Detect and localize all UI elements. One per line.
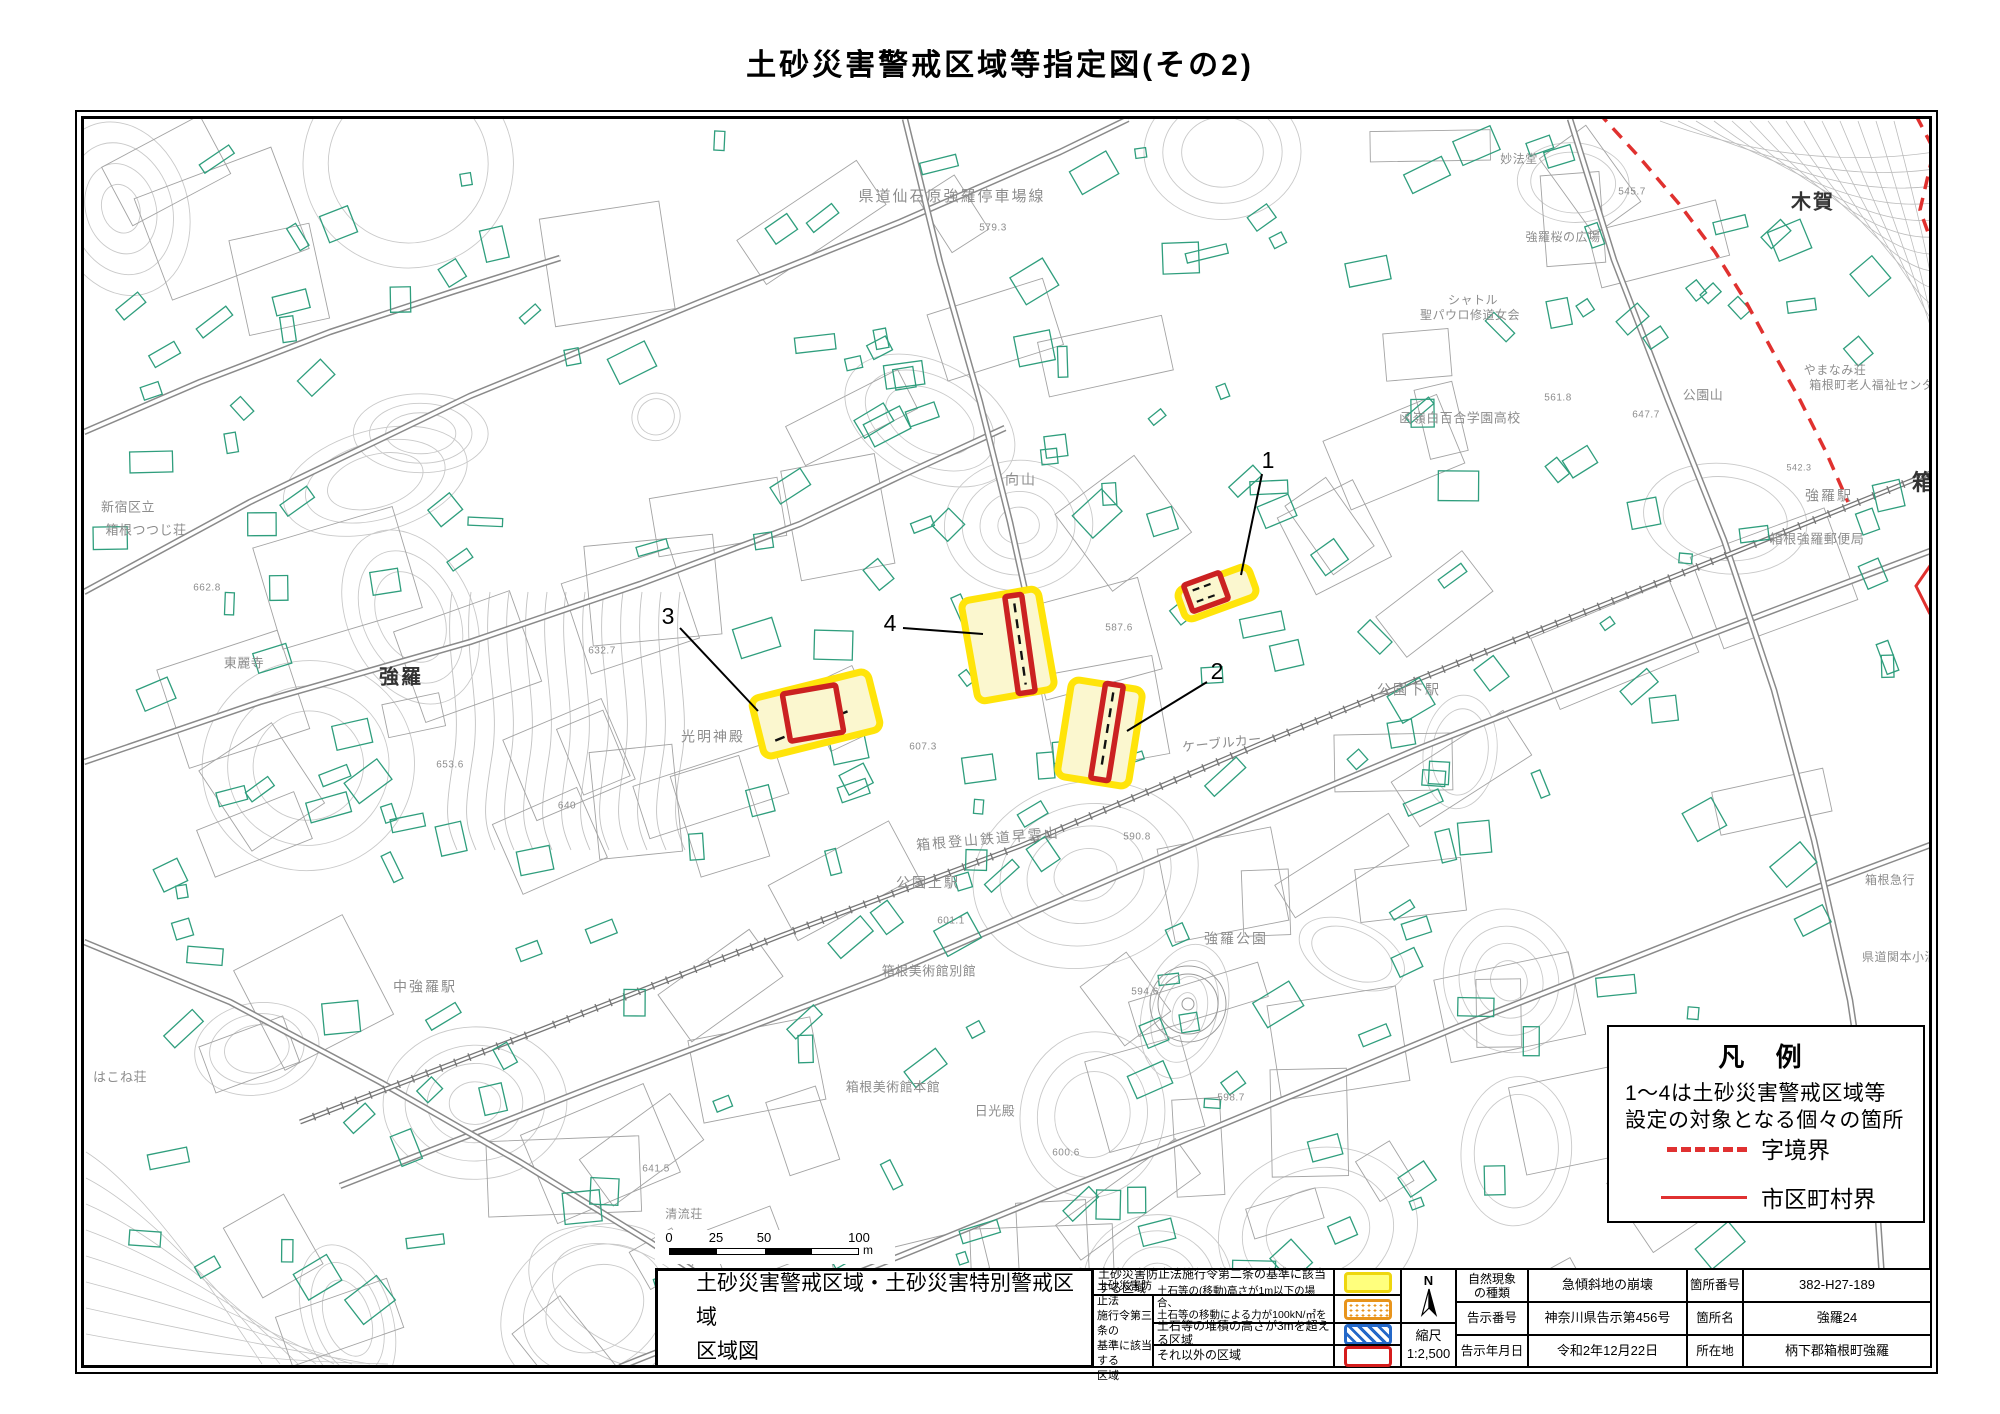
building-outline — [319, 765, 351, 787]
building-outline — [1600, 616, 1615, 630]
parcel-outline — [197, 792, 313, 877]
building-outline — [153, 858, 187, 892]
building-outline — [468, 517, 503, 527]
contour-line — [1168, 990, 1201, 1033]
parcel-outline — [1085, 1035, 1205, 1152]
building-outline — [306, 792, 352, 823]
legend-item-label: 字境界 — [1761, 1131, 1830, 1165]
building-outline — [880, 1160, 902, 1190]
building-outline — [806, 204, 838, 233]
building-outline — [516, 845, 554, 875]
building-outline — [985, 859, 1020, 892]
designation-map-page: 土砂災害警戒区域等指定図(その2) 1234県道仙石原強羅停車場線579.3木賀… — [0, 0, 2000, 1414]
elevation-label: 662.8 — [193, 583, 221, 594]
building-outline — [1014, 330, 1056, 367]
parcel-outline — [737, 160, 886, 284]
building-outline — [1409, 1197, 1424, 1210]
building-outline — [1545, 457, 1569, 482]
contour-line — [985, 785, 1187, 964]
building-outline — [1328, 1217, 1358, 1244]
scale-tick-label: 0 — [665, 1230, 672, 1245]
building-outline — [883, 361, 924, 389]
map-label: 箱根美術館別館 — [882, 963, 977, 978]
parcel-outline — [1383, 328, 1452, 381]
building-outline — [1844, 336, 1873, 366]
parcel-outline — [1356, 1141, 1414, 1202]
building-outline — [794, 334, 836, 354]
map-label: 箱根急行 — [1865, 872, 1915, 887]
contour-line — [1181, 119, 1264, 188]
north-label: N — [1424, 1274, 1433, 1289]
building-outline — [1428, 761, 1449, 785]
building-outline — [332, 718, 373, 750]
map-label: 日光殿 — [975, 1103, 1016, 1118]
building-outline — [438, 259, 466, 287]
building-outline — [1345, 255, 1391, 287]
building-outline — [1147, 506, 1179, 536]
contour-line — [86, 1178, 280, 1364]
building-outline — [845, 356, 863, 371]
elevation-label: 647.7 — [1632, 410, 1660, 421]
building-outline — [426, 1003, 461, 1031]
elevation-label: 607.3 — [909, 742, 937, 753]
building-outline — [282, 1240, 293, 1262]
contour-line — [353, 393, 489, 473]
building-outline — [1649, 695, 1678, 723]
building-outline — [1876, 640, 1899, 674]
contour-line — [86, 1282, 352, 1364]
map-label: 清流荘 — [665, 1207, 703, 1221]
building-outline — [1695, 1222, 1745, 1270]
contour-line — [623, 384, 689, 449]
map-label: 向山 — [1005, 472, 1037, 488]
contour-line — [1455, 1072, 1577, 1230]
contour-line — [448, 592, 457, 850]
scale-cell: 縮尺 1:2,500 — [1400, 1322, 1457, 1368]
building-outline — [224, 432, 239, 453]
detail-label: 箇所番号 — [1686, 1268, 1744, 1303]
detail-label: 所在地 — [1686, 1334, 1744, 1368]
detail-label: 告示番号 — [1455, 1301, 1529, 1336]
building-outline — [1135, 148, 1147, 159]
building-outline — [381, 804, 397, 824]
building-outline — [516, 940, 542, 961]
map-label: 光明神殿 — [681, 729, 745, 745]
parcel-outline — [539, 201, 675, 327]
building-outline — [1401, 916, 1431, 940]
building-outline — [870, 900, 903, 934]
building-outline — [962, 754, 996, 784]
building-outline — [607, 341, 656, 384]
building-outline — [746, 785, 775, 817]
building-outline — [195, 1256, 221, 1278]
parcel-outline — [492, 787, 607, 894]
contour-line — [96, 180, 146, 238]
contour-line — [449, 1081, 502, 1125]
map-sheet-title-cell: 土砂災害警戒区域・土砂災害特別警戒区域区域図 — [655, 1268, 1094, 1368]
building-outline — [479, 226, 509, 262]
building-outline — [1531, 770, 1550, 798]
map-label: 県道仙石原強羅停車場線 — [858, 188, 1045, 205]
parcel-outline — [786, 370, 918, 466]
contour-line — [657, 592, 666, 850]
building-outline — [920, 154, 959, 174]
zone-marker-number-2: 2 — [1211, 658, 1224, 684]
building-outline — [956, 1252, 968, 1265]
map-label: 箱根強羅郵便局 — [1770, 531, 1865, 546]
map-label: 公園上駅 — [896, 875, 960, 891]
contour-line — [1162, 119, 1283, 204]
detail-value: 強羅24 — [1742, 1301, 1932, 1336]
building-outline — [1010, 258, 1059, 305]
building-outline — [1247, 204, 1276, 231]
scale-bar-strip — [669, 1248, 859, 1255]
scale-value: 1:2,500 — [1407, 1345, 1450, 1363]
building-outline — [713, 1095, 733, 1112]
detail-value: 急傾斜地の崩壊 — [1527, 1268, 1688, 1303]
map-label: 箱根美術館本館 — [846, 1079, 941, 1094]
map-label: 公園下駅 — [1377, 682, 1441, 698]
detail-label: 箇所名 — [1686, 1301, 1744, 1336]
parcel-outline — [1270, 1068, 1349, 1177]
building-outline — [1063, 1187, 1099, 1222]
building-outline — [1216, 383, 1230, 399]
article3-row-swatch-cell — [1333, 1344, 1402, 1368]
building-outline — [1185, 244, 1228, 263]
legend-title: 凡 例 — [1609, 1037, 1923, 1074]
parcel-outline — [589, 744, 682, 859]
contour-line — [1154, 971, 1215, 1051]
article3-row-swatch-cell — [1333, 1294, 1402, 1324]
special-area-red — [782, 685, 844, 742]
contour-line — [1470, 1091, 1563, 1211]
elevation-label: 545.7 — [1618, 187, 1646, 198]
building-outline — [1127, 1061, 1172, 1099]
elevation-label: 594.6 — [1131, 987, 1159, 998]
map-label: 箱根 — [1912, 470, 1929, 495]
building-outline — [1391, 947, 1423, 977]
contour-line — [233, 691, 383, 840]
map-label: 強羅桜の広場 — [1525, 230, 1600, 244]
building-outline — [1044, 434, 1068, 458]
building-outline — [1269, 232, 1286, 249]
park-fountain — [1158, 974, 1218, 1034]
building-outline — [1438, 563, 1467, 588]
building-outline — [863, 559, 894, 591]
building-outline — [319, 206, 357, 243]
map-label: 強羅公園 — [1204, 931, 1268, 947]
building-outline — [798, 1035, 813, 1063]
building-outline — [973, 799, 983, 814]
building-outline — [1787, 298, 1817, 313]
building-outline — [689, 833, 705, 860]
solid-boundary-sample-line — [1661, 1196, 1747, 1199]
building-outline — [585, 919, 617, 943]
building-outline — [1562, 446, 1597, 478]
contour-line — [581, 592, 590, 850]
building-outline — [1057, 346, 1067, 377]
elevation-label: 542.3 — [1786, 462, 1811, 472]
building-outline — [1850, 256, 1891, 297]
parcel-outline — [1690, 508, 1858, 649]
scale-bar: 0 25 50 100 m — [655, 1230, 895, 1264]
building-outline — [280, 486, 315, 516]
orange-dots-swatch — [1344, 1299, 1392, 1320]
map-label: はこね荘 — [93, 1069, 147, 1084]
building-outline — [406, 1234, 445, 1249]
compass-cell: N — [1400, 1268, 1457, 1324]
page-title: 土砂災害警戒区域等指定図(その2) — [0, 40, 2000, 84]
building-outline — [199, 145, 234, 173]
map-label: やまなみ荘 — [1804, 363, 1867, 377]
north-arrow-icon — [1417, 1288, 1441, 1318]
detail-value: 柄下郡箱根町強羅 — [1742, 1334, 1932, 1368]
zone-marker-leader-1 — [1241, 474, 1262, 575]
parcel-outline — [557, 710, 631, 795]
contour-line — [953, 757, 1219, 992]
red-outline-swatch — [1344, 1346, 1392, 1367]
contour-line — [187, 993, 326, 1105]
elevation-label: 641.5 — [642, 1164, 670, 1175]
building-outline — [1250, 480, 1288, 495]
building-outline — [519, 304, 540, 324]
contour-line — [321, 443, 430, 520]
building-outline — [1739, 526, 1769, 543]
map-label: 函嶺白百合学園高校 — [1399, 410, 1521, 425]
building-outline — [814, 630, 853, 660]
detail-value: 令和2年12月22日 — [1527, 1334, 1688, 1368]
elevation-label: 600.6 — [1052, 1148, 1080, 1159]
parcel-outline — [102, 119, 231, 226]
building-outline — [1269, 640, 1303, 672]
building-outline — [905, 402, 939, 427]
building-outline — [176, 885, 189, 899]
parcel-outline — [134, 147, 309, 300]
building-outline — [1162, 242, 1199, 274]
building-outline — [248, 513, 277, 536]
building-outline — [136, 677, 176, 711]
building-outline — [1682, 798, 1726, 842]
contour-line — [369, 403, 472, 464]
building-outline — [1221, 1071, 1246, 1095]
parcel-outline — [1241, 869, 1290, 936]
building-outline — [1359, 1024, 1391, 1047]
contour-line — [84, 130, 189, 288]
map-label: 木賀 — [1790, 189, 1835, 213]
contour-line — [638, 592, 647, 850]
detail-value: 神奈川県告示第456号 — [1527, 1301, 1688, 1336]
parcel-outline — [1016, 1200, 1090, 1275]
contour-line — [1876, 121, 1929, 356]
building-outline — [1627, 497, 1661, 529]
building-outline — [270, 576, 288, 601]
building-outline — [130, 451, 173, 473]
building-outline — [1148, 409, 1166, 426]
scale-unit-label: m — [863, 1243, 873, 1257]
detail-label: 自然現象の種類 — [1455, 1268, 1529, 1303]
building-outline — [1687, 1007, 1699, 1020]
building-outline — [828, 916, 873, 959]
building-outline — [1240, 611, 1285, 638]
scale-tick-label: 25 — [709, 1230, 723, 1245]
parcel-outline — [512, 1296, 627, 1365]
building-outline — [1700, 283, 1721, 304]
building-outline — [732, 617, 780, 658]
building-outline — [966, 1021, 984, 1039]
parcel-outline — [1277, 480, 1391, 595]
parcel-outline — [1712, 768, 1832, 835]
building-outline — [116, 292, 146, 320]
building-outline — [1453, 126, 1500, 166]
article3-row-label: それ以外の区域 — [1152, 1344, 1335, 1368]
parcel-outline — [1267, 986, 1410, 1100]
map-label: 聖パウロ修道女会 — [1420, 307, 1520, 322]
elevation-label: 579.3 — [979, 223, 1007, 234]
contour-line — [1417, 691, 1503, 812]
building-outline — [1403, 789, 1443, 816]
elevation-label: 598.7 — [1217, 1093, 1245, 1104]
building-outline — [590, 1178, 619, 1206]
contour-line — [1696, 121, 1929, 188]
building-outline — [1596, 974, 1636, 997]
building-outline — [1544, 145, 1575, 169]
parcel-outline — [1055, 455, 1191, 591]
scale-tick-label: 50 — [757, 1230, 771, 1245]
map-label: 東麗寺 — [224, 655, 265, 670]
map-label: 公園山 — [1683, 387, 1724, 402]
building-outline — [1347, 749, 1368, 769]
building-outline — [1457, 820, 1491, 855]
contour-line — [467, 592, 476, 850]
building-outline — [839, 763, 873, 795]
building-outline — [863, 406, 911, 447]
parcel-outline — [649, 477, 786, 557]
building-outline — [187, 946, 224, 965]
map-label: 新宿区立 — [101, 499, 155, 514]
dashed-boundary-sample-line — [1667, 1147, 1747, 1152]
building-outline — [1484, 1166, 1505, 1195]
building-outline — [1620, 669, 1658, 705]
map-label: 強羅 — [379, 665, 423, 688]
building-outline — [196, 306, 232, 338]
map-legend-box: 凡 例 1〜4は土砂災害警戒区域等設定の対象となる個々の箇所 字境界 市区町村界 — [1607, 1025, 1925, 1223]
parcel-outline — [1376, 551, 1493, 658]
parcel-outline — [1355, 857, 1467, 922]
zone-marker-number-3: 3 — [662, 603, 675, 629]
building-outline — [149, 341, 181, 367]
parcel-outline — [1172, 1097, 1225, 1197]
building-outline — [854, 403, 894, 438]
building-outline — [460, 173, 472, 187]
map-label: シャトル — [1448, 293, 1498, 307]
building-outline — [1037, 752, 1055, 779]
building-outline — [1761, 219, 1791, 248]
building-outline — [1398, 1161, 1436, 1197]
legend-note: 1〜4は土砂災害警戒区域等設定の対象となる個々の箇所 — [1625, 1080, 1923, 1134]
contour-line — [1894, 121, 1929, 373]
municipal-boundary-line — [1916, 560, 1929, 614]
map-label: 強羅駅 — [1805, 488, 1853, 504]
building-outline — [164, 1010, 204, 1048]
contour-line — [1028, 1043, 1157, 1185]
building-outline — [932, 508, 965, 541]
article3-row-swatch-cell — [1333, 1322, 1402, 1346]
building-outline — [1404, 156, 1451, 193]
elevation-label: 632.7 — [588, 646, 616, 657]
building-outline — [224, 592, 234, 614]
building-outline — [272, 289, 310, 316]
park-fountain — [1182, 998, 1194, 1010]
parcel-outline — [584, 534, 722, 646]
contour-line — [1288, 902, 1416, 1006]
parcel-outline — [1246, 1188, 1324, 1239]
building-outline — [714, 131, 725, 151]
building-outline — [1102, 483, 1117, 506]
map-label: 県道関本小涌谷線 — [1862, 949, 1929, 964]
parcel-outline — [781, 454, 895, 581]
building-outline — [245, 776, 274, 801]
contour-line — [315, 119, 502, 257]
building-outline — [344, 1103, 375, 1133]
zone-marker-number-4: 4 — [884, 610, 897, 636]
building-outline — [1069, 151, 1118, 194]
elevation-label: 561.8 — [1544, 393, 1572, 404]
building-outline — [280, 316, 297, 343]
blue-hatch-swatch — [1344, 1324, 1392, 1345]
building-outline — [825, 848, 842, 875]
parcel-outline — [223, 1194, 323, 1298]
building-outline — [770, 468, 811, 504]
hazard-zone-3-special — [782, 685, 844, 742]
building-outline — [435, 821, 467, 856]
legend-item-label: 市区町村界 — [1761, 1180, 1876, 1214]
building-outline — [1546, 298, 1572, 329]
contour-line — [1303, 915, 1400, 994]
map-label: 妙法堂 — [1500, 152, 1538, 166]
building-outline — [381, 852, 403, 883]
elevation-label: 653.6 — [436, 760, 464, 771]
contour-line — [1750, 121, 1929, 237]
contour-line — [530, 1247, 660, 1365]
parcel-outline — [579, 1093, 703, 1206]
contour-line — [84, 155, 168, 263]
building-outline — [1128, 1187, 1146, 1213]
contour-line — [997, 506, 1041, 545]
building-outline — [1713, 215, 1748, 235]
park-fountain — [1150, 966, 1226, 1042]
zone-marker-leader-3 — [680, 628, 758, 711]
map-label: 箱根町老人福祉センター — [1809, 377, 1929, 392]
building-outline — [1358, 620, 1392, 654]
building-outline — [911, 516, 935, 533]
article3-row-label: 土石等の堆積の高さが3mを超える区域 — [1152, 1322, 1335, 1346]
elevation-label: 587.6 — [1105, 623, 1133, 634]
building-outline — [1438, 471, 1479, 501]
parcel-outline — [766, 1086, 840, 1176]
contour-line — [86, 1152, 262, 1364]
parcel-outline — [1540, 172, 1606, 267]
building-outline — [1770, 842, 1817, 887]
elevation-label: 601.1 — [937, 916, 965, 927]
contour-line — [1660, 121, 1929, 158]
building-outline — [230, 397, 253, 421]
map-label: 箱根つつじ荘 — [105, 522, 186, 537]
building-outline — [297, 359, 334, 396]
building-outline — [1474, 656, 1509, 691]
elevation-label: 640 — [558, 801, 576, 812]
building-outline — [428, 493, 463, 527]
building-outline — [447, 548, 473, 571]
